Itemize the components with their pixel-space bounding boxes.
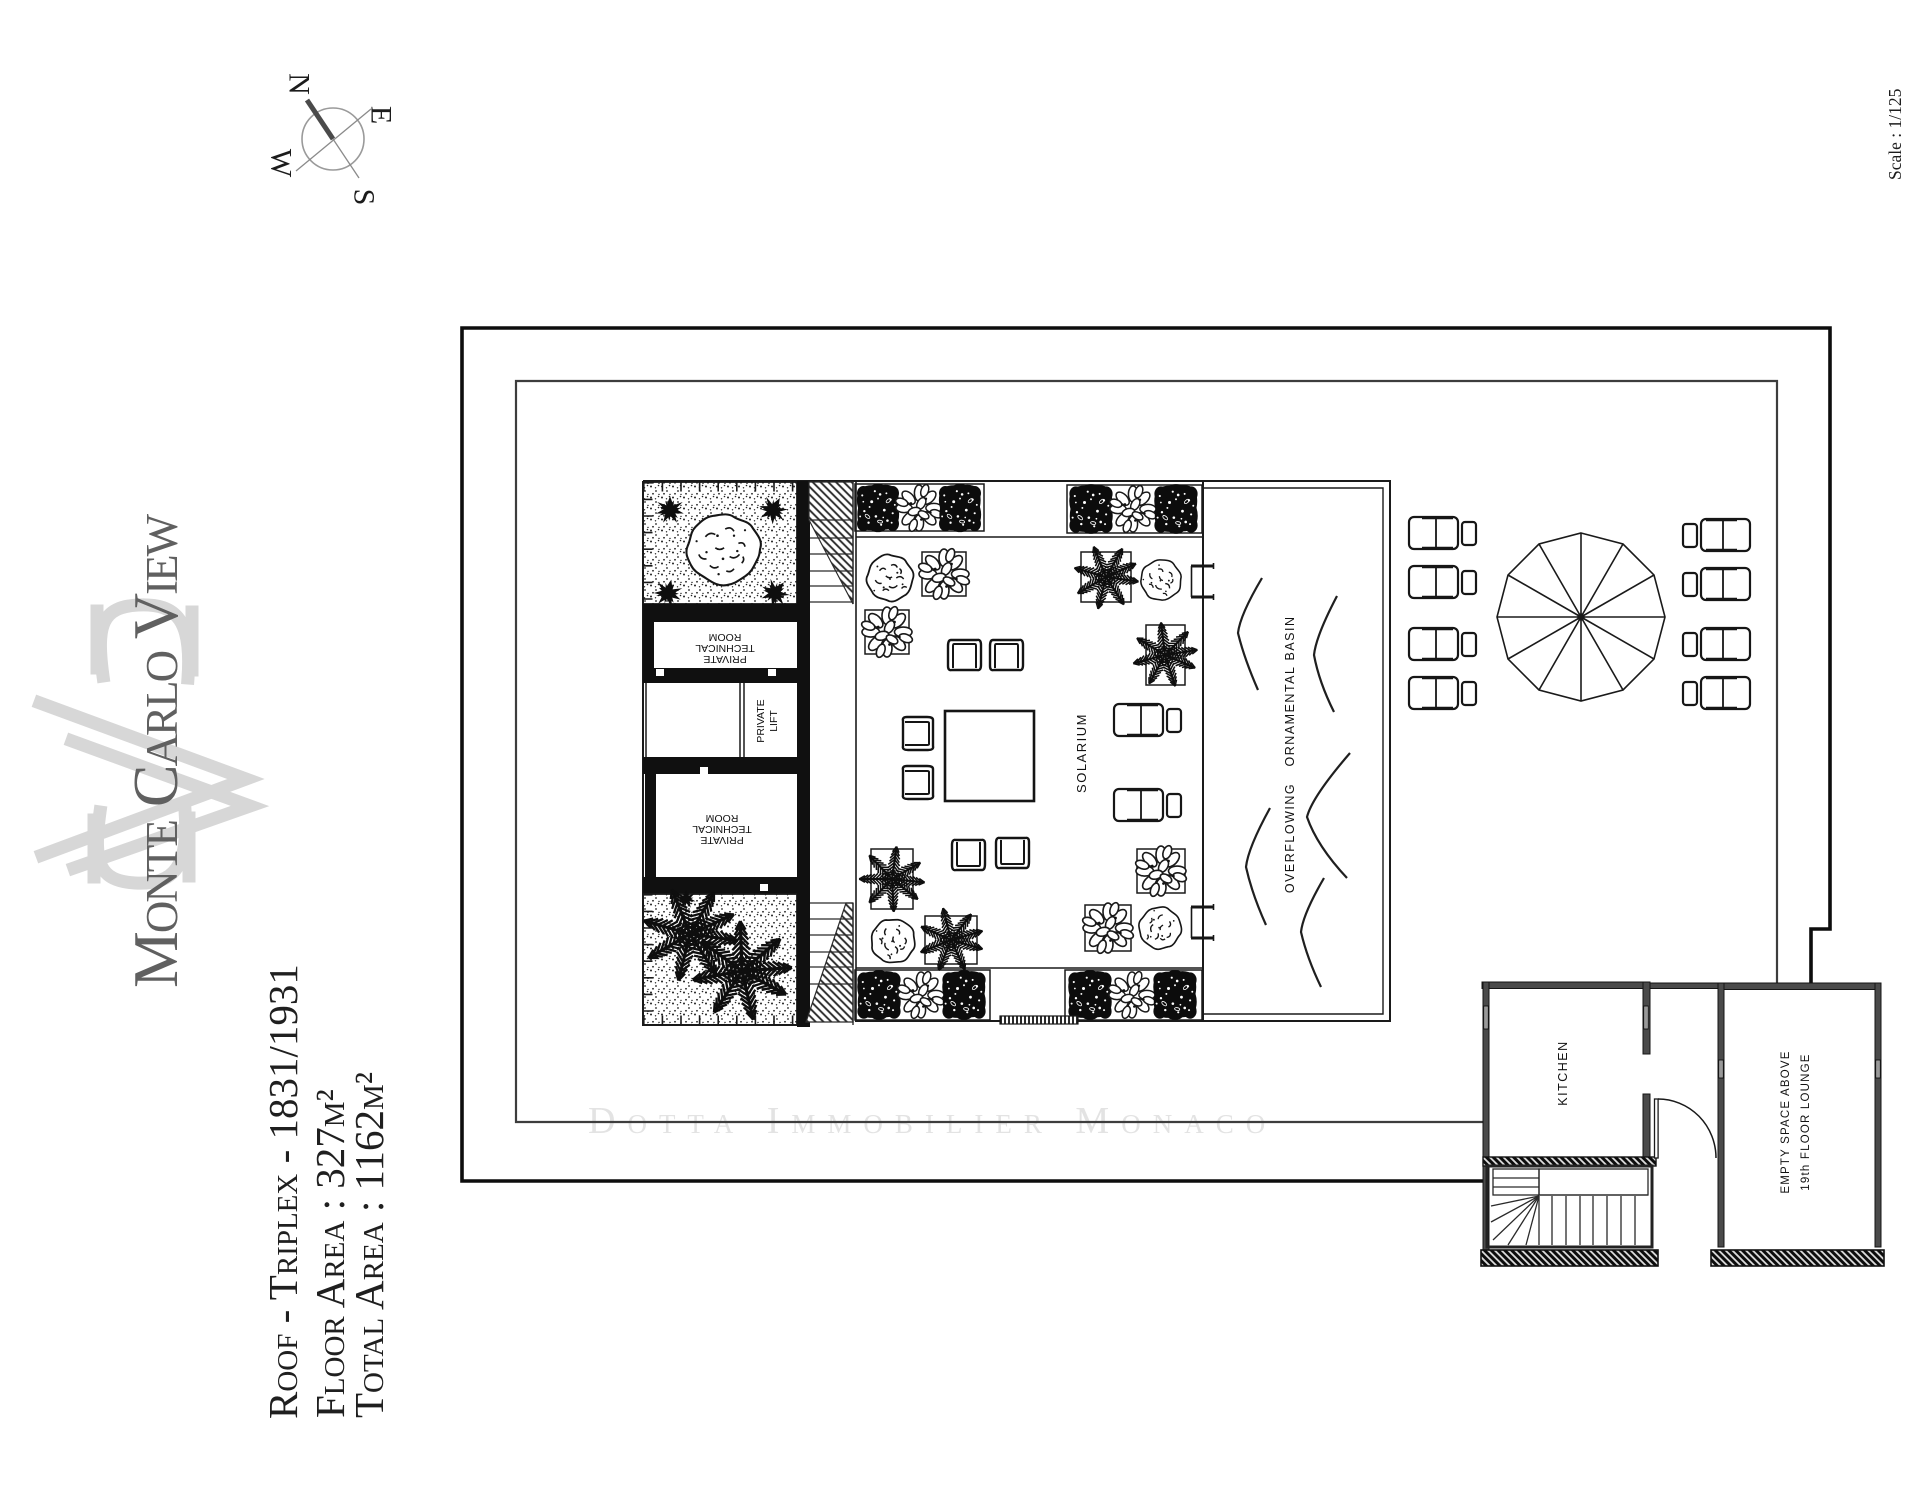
svg-text:N: N (283, 73, 316, 95)
svg-text:OVERFLOWING: OVERFLOWING (1283, 783, 1297, 893)
svg-text:Monte Carlo View: Monte Carlo View (120, 513, 191, 988)
svg-text:W: W (265, 149, 298, 178)
svg-text:KITCHEN: KITCHEN (1556, 1040, 1570, 1105)
svg-text:Roof - Triplex - 1831/1931: Roof - Triplex - 1831/1931 (260, 964, 306, 1419)
svg-text:19th FLOOR LOUNGE: 19th FLOOR LOUNGE (1800, 1053, 1812, 1190)
svg-text:BASIN: BASIN (1283, 615, 1297, 660)
svg-text:Scale : 1/125: Scale : 1/125 (1885, 88, 1905, 180)
svg-text:SOLARIUM: SOLARIUM (1074, 713, 1089, 793)
svg-text:EMPTY SPACE ABOVE: EMPTY SPACE ABOVE (1780, 1050, 1792, 1193)
svg-text:E: E (365, 106, 398, 124)
svg-text:S: S (348, 189, 381, 206)
svg-text:ORNAMENTAL: ORNAMENTAL (1283, 666, 1297, 767)
svg-text:Total Area : 1162m²: Total Area : 1162m² (346, 1072, 392, 1418)
